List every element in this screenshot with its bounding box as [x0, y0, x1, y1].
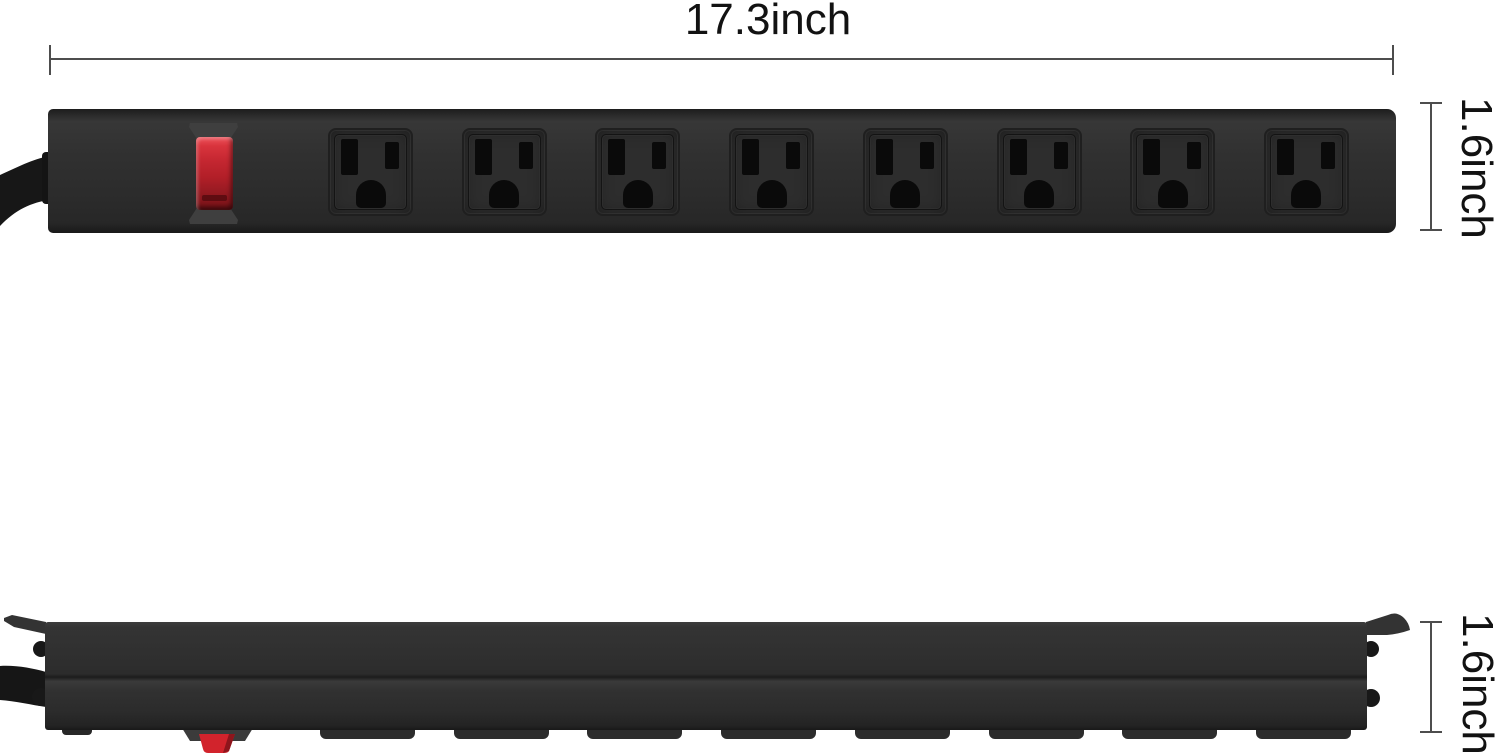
side-height-dimension-cap-top [1420, 621, 1442, 623]
power-strip-side-view [45, 622, 1367, 730]
product-image: 17.3inch 1.6inch 1.6inch [0, 0, 1500, 753]
side-height-dimension-cap-bottom [1420, 731, 1442, 733]
side-height-dimension-line [1430, 622, 1432, 732]
side-height-dimension-label: 1.6inch [1454, 613, 1500, 753]
